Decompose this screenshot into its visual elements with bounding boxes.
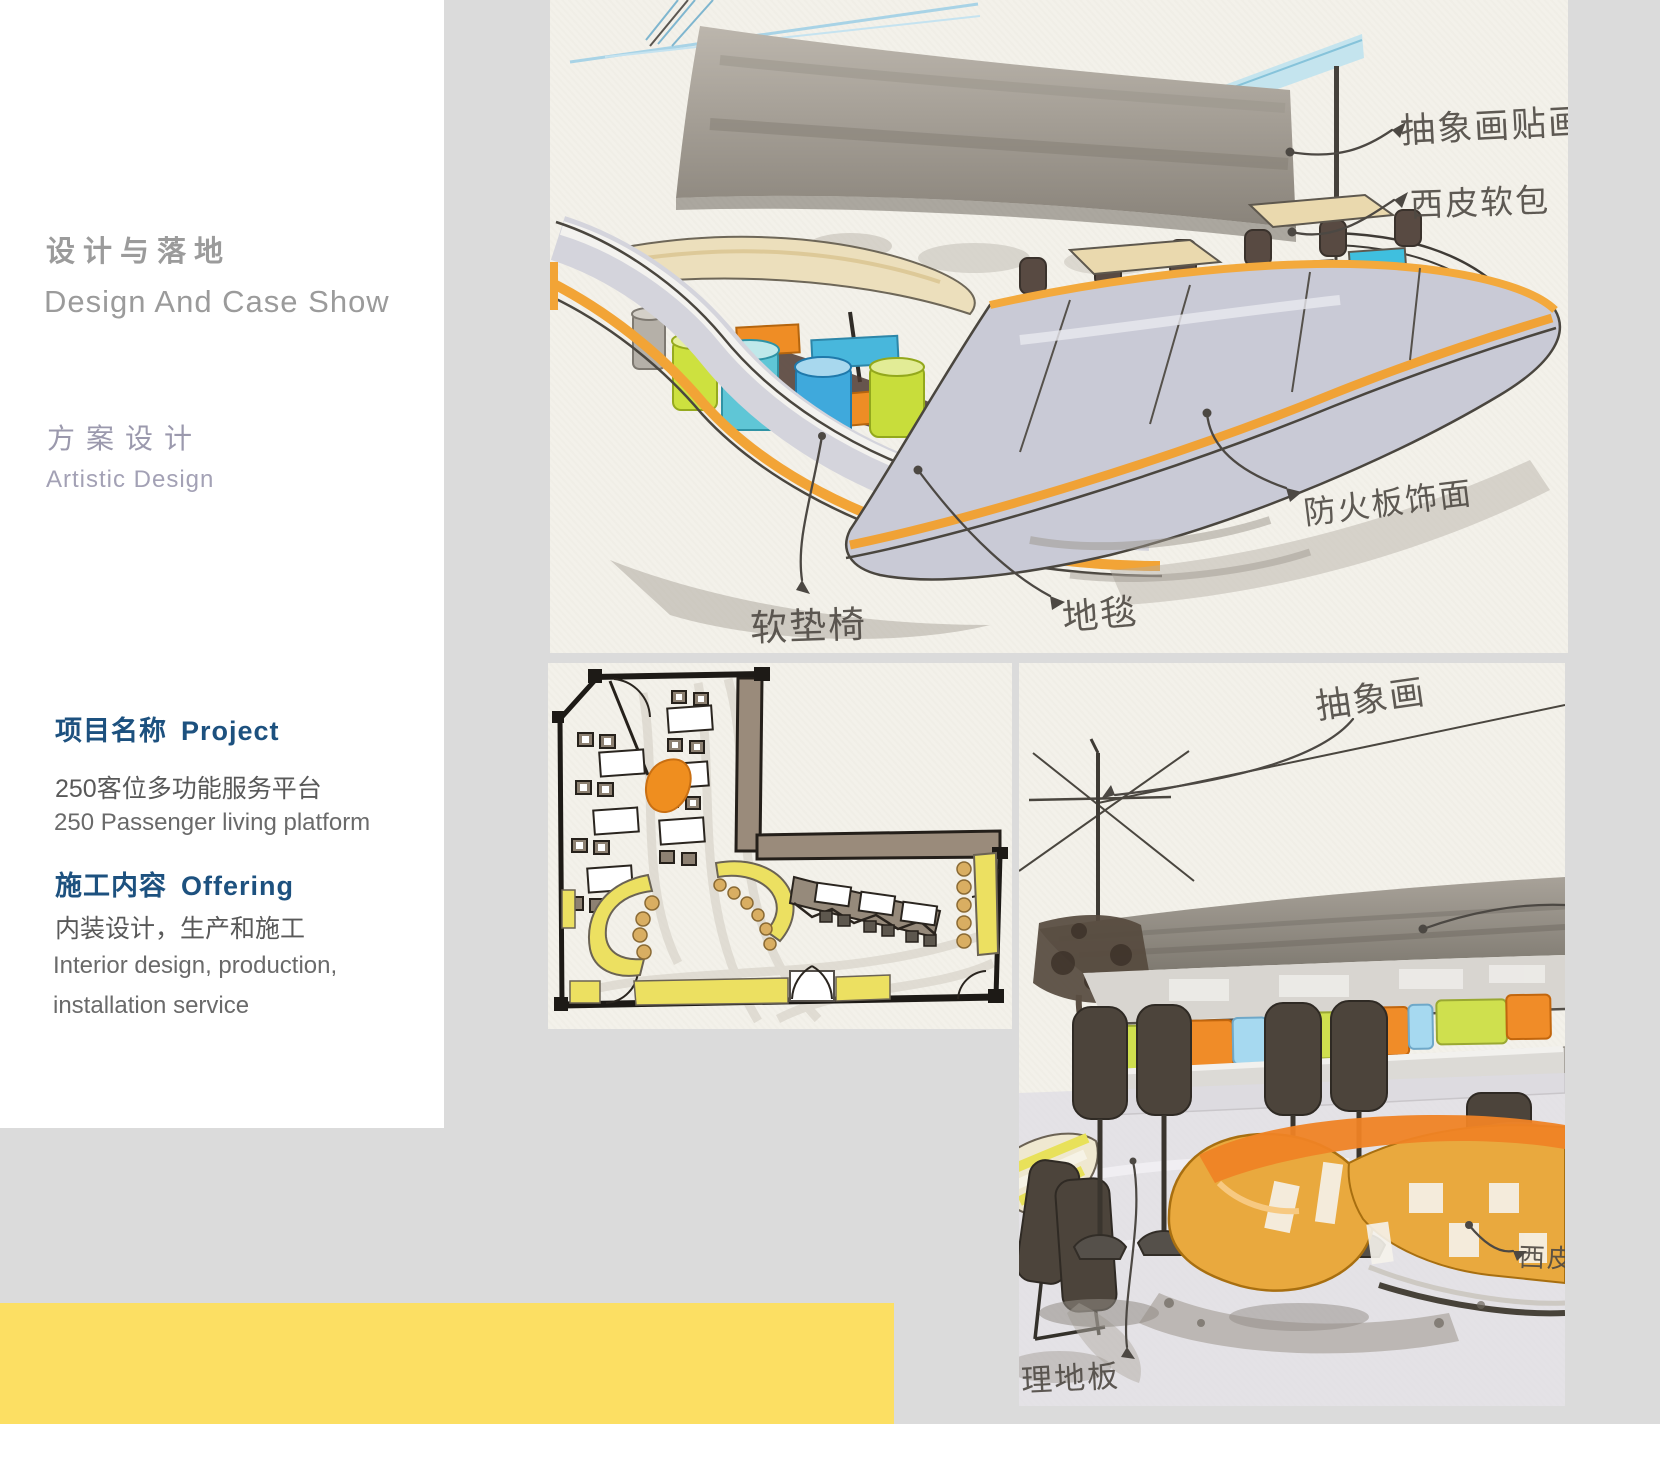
brochure-page: 设计与落地 Design And Case Show 方案设计 Artistic… bbox=[0, 0, 1660, 1464]
offering-line-en2: installation service bbox=[53, 992, 249, 1020]
offering-line-zh: 内装设计，生产和施工 bbox=[55, 909, 305, 945]
subsection-title-en: Artistic Design bbox=[46, 466, 214, 494]
perspective-main-art bbox=[550, 0, 1568, 653]
perspective-secondary-sketch: 抽象画 西皮 理地板 bbox=[1019, 663, 1565, 1406]
project-line-zh: 250客位多功能服务平台 bbox=[55, 769, 322, 805]
accent-yellow-bar bbox=[0, 1303, 894, 1424]
project-line-en: 250 Passenger living platform bbox=[54, 809, 370, 837]
project-heading-zh: 项目名称 bbox=[55, 716, 167, 746]
floor-plan-sketch bbox=[548, 663, 1012, 1029]
offering-heading-zh: 施工内容 bbox=[55, 871, 167, 901]
floor-plan-art bbox=[548, 663, 1012, 1029]
annotation-abstract-painting-decal: 抽象画贴画 bbox=[1399, 93, 1568, 154]
annotation-marble-floor-partial: 理地板 bbox=[1020, 1350, 1121, 1400]
offering-line-en1: Interior design, production, bbox=[53, 952, 337, 980]
section-title-zh: 设计与落地 bbox=[46, 228, 231, 270]
section-title-en: Design And Case Show bbox=[44, 284, 390, 320]
project-heading: 项目名称Project bbox=[55, 709, 280, 748]
annotation-leather-partial: 西皮 bbox=[1518, 1237, 1565, 1276]
perspective-secondary-art bbox=[1019, 663, 1565, 1406]
offering-heading: 施工内容Offering bbox=[55, 864, 294, 903]
annotation-leather-soft-padding: 西皮软包 bbox=[1409, 174, 1551, 227]
annotation-cushion-chair: 软垫椅 bbox=[749, 594, 868, 652]
bottom-margin-strip bbox=[0, 1424, 1660, 1464]
perspective-main-sketch: 抽象画贴画 西皮软包 防火板饰面 地毯 软垫椅 bbox=[550, 0, 1568, 653]
project-heading-en: Project bbox=[181, 716, 280, 746]
annotation-carpet: 地毯 bbox=[1060, 583, 1140, 641]
subsection-title-zh: 方案设计 bbox=[47, 417, 203, 457]
offering-heading-en: Offering bbox=[181, 871, 294, 901]
